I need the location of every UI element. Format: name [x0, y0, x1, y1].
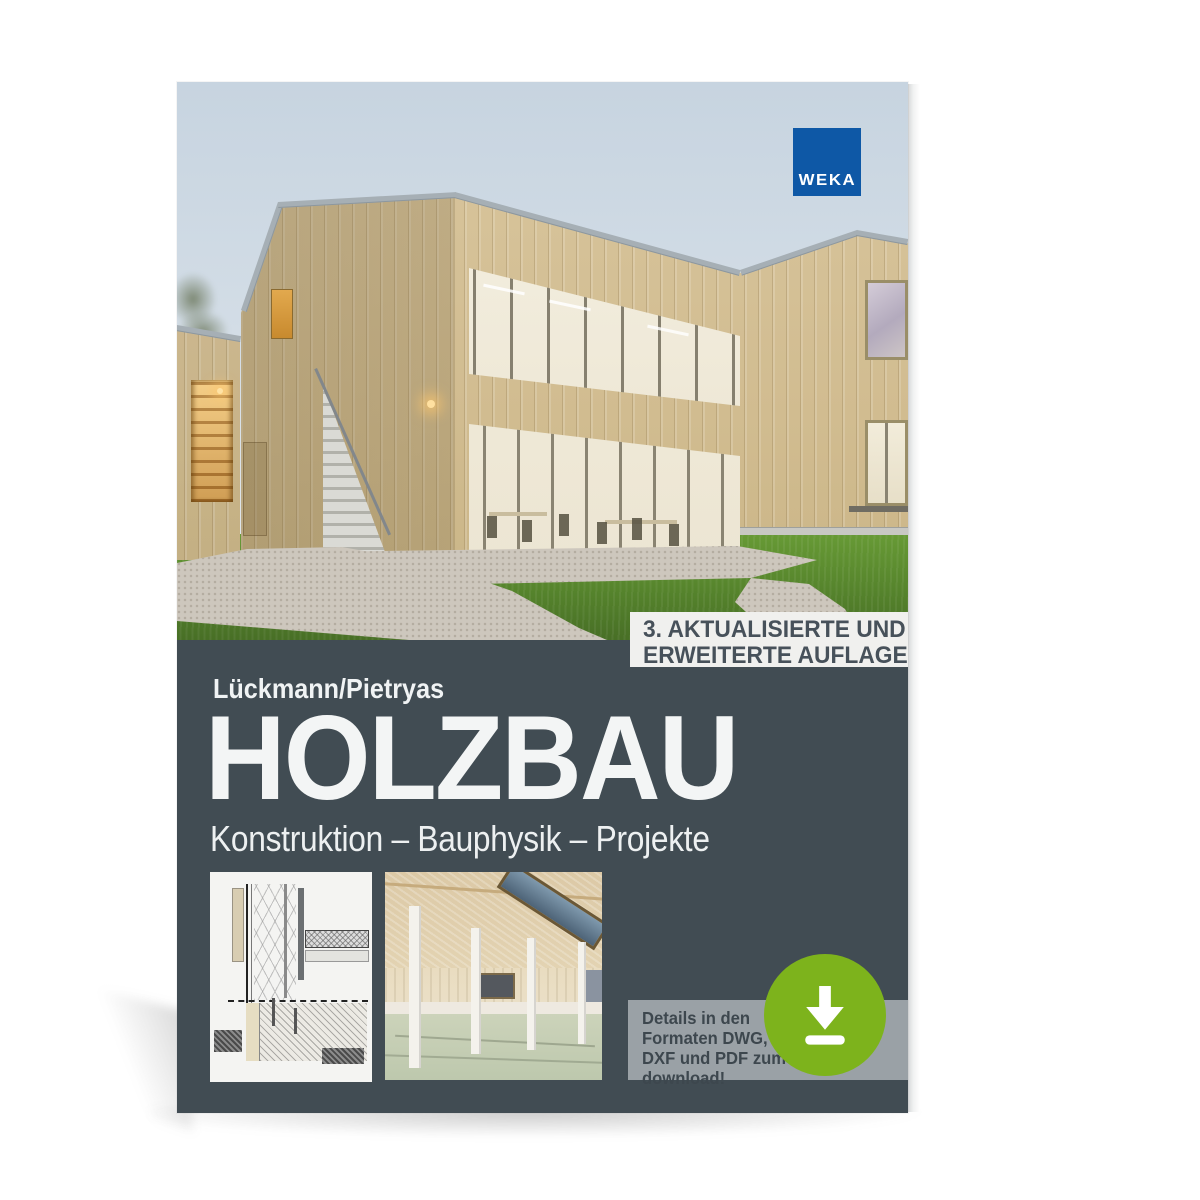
book-page-edge: [908, 84, 920, 1112]
office-chair: [669, 524, 679, 546]
publisher-logo-text: WEKA: [798, 172, 856, 196]
window-sill: [849, 506, 908, 512]
right-wing-upper-window: [865, 280, 908, 360]
truss-hatch: [254, 884, 296, 1000]
office-chair: [522, 520, 532, 542]
dashed-datum-line: [228, 1000, 368, 1002]
edition-badge-line2: ERWEITERTE AUFLAGE: [643, 643, 908, 669]
download-note-line: download!: [642, 1068, 725, 1088]
wall-stud-line: [246, 884, 248, 1006]
corner-wall-lamp: [427, 400, 435, 408]
interior-column: [527, 938, 536, 1050]
edition-badge: 3. AKTUALISIERTE UND ERWEITERTE AUFLAGE: [630, 612, 908, 667]
back-wall-window: [477, 973, 515, 999]
cladding-board: [232, 888, 244, 962]
interior-column: [409, 906, 421, 1068]
side-door: [243, 442, 267, 536]
download-note-line: Details in den: [642, 1008, 750, 1028]
anchor-screw: [272, 998, 275, 1026]
interior-column: [471, 928, 481, 1054]
thumbnail-interior-photo: [385, 872, 602, 1080]
base-board: [246, 1003, 260, 1061]
book-subtitle: Konstruktion – Bauphysik – Projekte: [210, 818, 778, 860]
office-chair: [597, 522, 607, 544]
slab-hatch: [305, 930, 369, 948]
dark-board: [298, 888, 304, 980]
small-golden-window: [271, 289, 293, 339]
anchor-screw: [294, 1008, 297, 1034]
office-chair: [632, 518, 642, 540]
book-title: HOLZBAU: [205, 698, 778, 818]
ceiling-light: [483, 284, 525, 296]
product-shot: WEKA 3. AKTUALISIERTE UND ERWEITERTE AUF…: [0, 0, 1200, 1200]
download-note-line: DXF und PDF zum: [642, 1048, 786, 1068]
interior-column: [578, 942, 586, 1044]
download-note-line: Formaten DWG,: [642, 1028, 768, 1048]
ceiling-light: [647, 325, 689, 337]
right-wing-lower-window: [865, 420, 908, 506]
post-line: [284, 884, 287, 998]
foundation-block: [214, 1030, 242, 1052]
download-badge: [764, 954, 886, 1076]
publisher-logo: WEKA: [793, 128, 861, 196]
office-chair: [487, 516, 497, 538]
wing-plinth: [740, 527, 908, 535]
slab-layer: [305, 950, 369, 962]
edition-badge-line1: 3. AKTUALISIERTE UND: [643, 617, 906, 643]
conference-table: [489, 512, 547, 516]
book-cover: WEKA 3. AKTUALISIERTE UND ERWEITERTE AUF…: [177, 82, 908, 1113]
foundation-block: [322, 1048, 364, 1064]
wall-stud-line: [251, 884, 252, 1006]
thumbnail-construction-detail-drawing: [210, 872, 372, 1082]
office-chair: [559, 514, 569, 536]
lit-stair-corridor: [191, 380, 233, 502]
download-arrow-icon: [788, 978, 862, 1052]
ceiling-light: [549, 300, 591, 312]
wall-lamp: [217, 388, 223, 394]
